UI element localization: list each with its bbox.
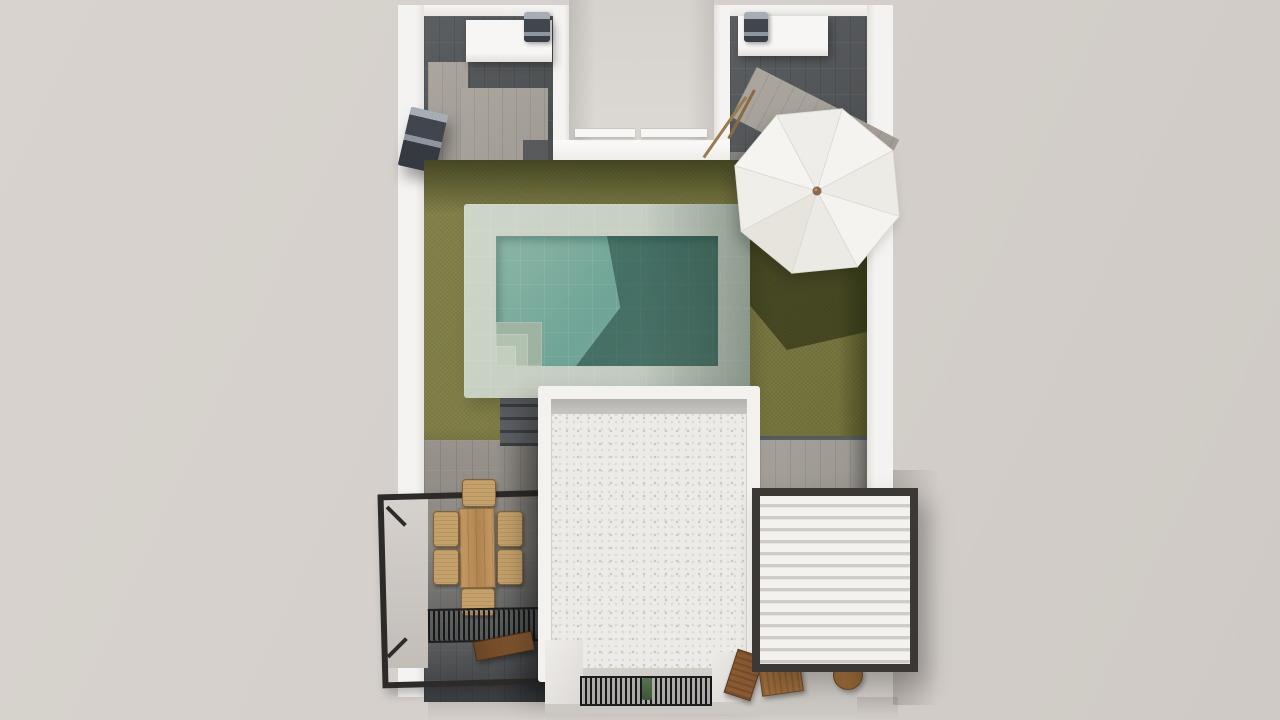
dining-chair xyxy=(433,511,459,547)
dining-chair xyxy=(433,549,459,585)
planter xyxy=(642,678,652,700)
dining-chair xyxy=(497,549,523,585)
dining-chair xyxy=(462,479,496,507)
roof-parapet-band xyxy=(551,399,747,414)
house-roof xyxy=(538,386,760,682)
entry-notch-floor xyxy=(569,0,714,140)
barbecue-grill-icon xyxy=(744,12,768,42)
pool-border-shadow xyxy=(464,204,750,398)
villa-top-down-render xyxy=(0,0,1280,720)
louvered-pergola xyxy=(752,488,918,672)
pool xyxy=(464,204,750,398)
dining-chair xyxy=(497,511,523,547)
barbecue-grill-icon xyxy=(524,12,550,42)
parasol xyxy=(728,102,906,280)
window-sill xyxy=(641,128,707,137)
wall-corner xyxy=(545,640,583,704)
dining-table xyxy=(458,508,495,589)
window-sill xyxy=(575,128,635,137)
